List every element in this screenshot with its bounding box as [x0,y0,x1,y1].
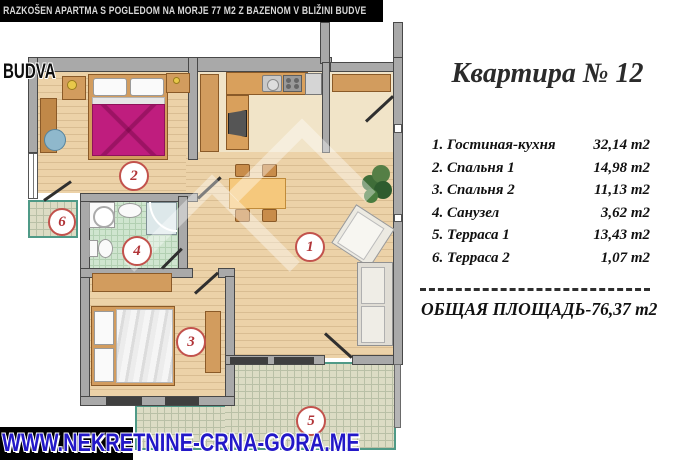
banner-text: RAZKOŠEN APARTMA S POGLEDOM NA MORJE 77 … [0,5,366,17]
chair [262,209,277,222]
room-marker-6: 6 [48,208,76,236]
desk-lamp [173,77,180,84]
dresser-bedroom2 [205,311,221,373]
total-area: ОБЩАЯ ПЛОЩАДЬ-76,37 m2 [421,299,671,320]
room-area: 3,62 m2 [601,202,650,225]
entry-wardrobe [332,74,391,92]
bed2-pillow-top [94,311,114,345]
room-area: 14,98 m2 [593,157,650,180]
room-marker-1: 1 [295,232,325,262]
lamp [67,80,77,90]
window-left [28,153,38,199]
washing-machine [89,202,115,228]
room-label: 6. Терраса 2 [432,247,510,270]
wall-entry-stub-right [393,22,403,62]
bath-sink [118,203,142,218]
fridge [305,73,322,95]
room-label: 1. Гостиная-кухня [432,134,556,157]
room-area: 32,14 m2 [593,134,650,157]
floor-plan: 1 2 3 4 5 6 [0,0,420,460]
bed2-pillow-bottom [94,348,114,382]
wall-entry-top [330,62,394,72]
room-area: 1,07 m2 [601,247,650,270]
shower-cabin [146,202,177,235]
chair [262,164,277,177]
room-row: 3. Спальня 2 11,13 m2 [432,179,650,202]
dining-table [229,178,286,209]
wall-living-terrace-b [352,355,394,365]
stool-round [44,129,66,151]
room-label: 5. Терраса 1 [432,224,510,247]
stove [283,75,302,92]
wall-bedroom2-right [225,276,235,406]
room-marker-3: 3 [176,327,206,357]
wall-bathroom-right [178,196,188,276]
plant [360,163,394,207]
window-right-a [394,124,402,133]
bedroom2-terrace-window [165,397,199,405]
tall-cabinet [200,74,219,152]
wall-terrace-right [394,364,401,428]
wall-entry-stub-left [320,22,330,64]
room-row: 5. Терраса 1 13,43 m2 [432,224,650,247]
wall-kitchen-entry [322,62,330,153]
room-marker-2: 2 [119,161,149,191]
bed1-pillow-right [130,78,164,96]
living-terrace-window-b [274,357,314,364]
website-url: WWW.NEKRETNINE-CRNA-GORA.ME [2,429,360,458]
room-row: 2. Спальня 1 14,98 m2 [432,157,650,180]
top-banner: RAZKOŠEN APARTMA S POGLEDOM NA MORJE 77 … [0,0,383,22]
bed2-blanket [116,309,173,383]
wall-right [393,57,403,365]
room-row: 1. Гостиная-кухня 32,14 m2 [432,134,650,157]
room-list: 1. Гостиная-кухня 32,14 m2 2. Спальня 1 … [432,134,650,270]
room-label: 2. Спальня 1 [432,157,515,180]
toilet-tank [89,240,98,257]
apartment-title: Квартира № 12 [420,58,675,90]
wardrobe-bedroom2 [92,273,172,292]
room-area: 13,43 m2 [593,224,650,247]
wall-bedroom2-bottom [80,396,235,406]
room-area: 11,13 m2 [594,179,650,202]
room-label: 3. Спальня 2 [432,179,515,202]
room-label: 4. Санузел [432,202,499,225]
dashed-separator [420,288,650,291]
kitchen-sink [262,75,282,92]
toilet-bowl [98,239,113,258]
bed1-cover [92,104,165,156]
wall-top [28,57,332,72]
chair [235,209,250,222]
room-row: 4. Санузел 3,62 m2 [432,202,650,225]
real-estate-listing-image: 1 2 3 4 5 6 RAZKOŠEN APARTMA S POGLEDOM … [0,0,688,460]
sofa [357,262,393,346]
room-row: 6. Терраса 2 1,07 m2 [432,247,650,270]
location-label: BUDVA [3,60,56,84]
room-marker-4: 4 [122,236,152,266]
window-right-b [394,214,402,222]
living-terrace-window-a [230,357,268,364]
chair [235,164,250,177]
tv [228,110,247,137]
bed1-pillow-left [93,78,127,96]
bedroom2-terrace-door [106,397,142,405]
